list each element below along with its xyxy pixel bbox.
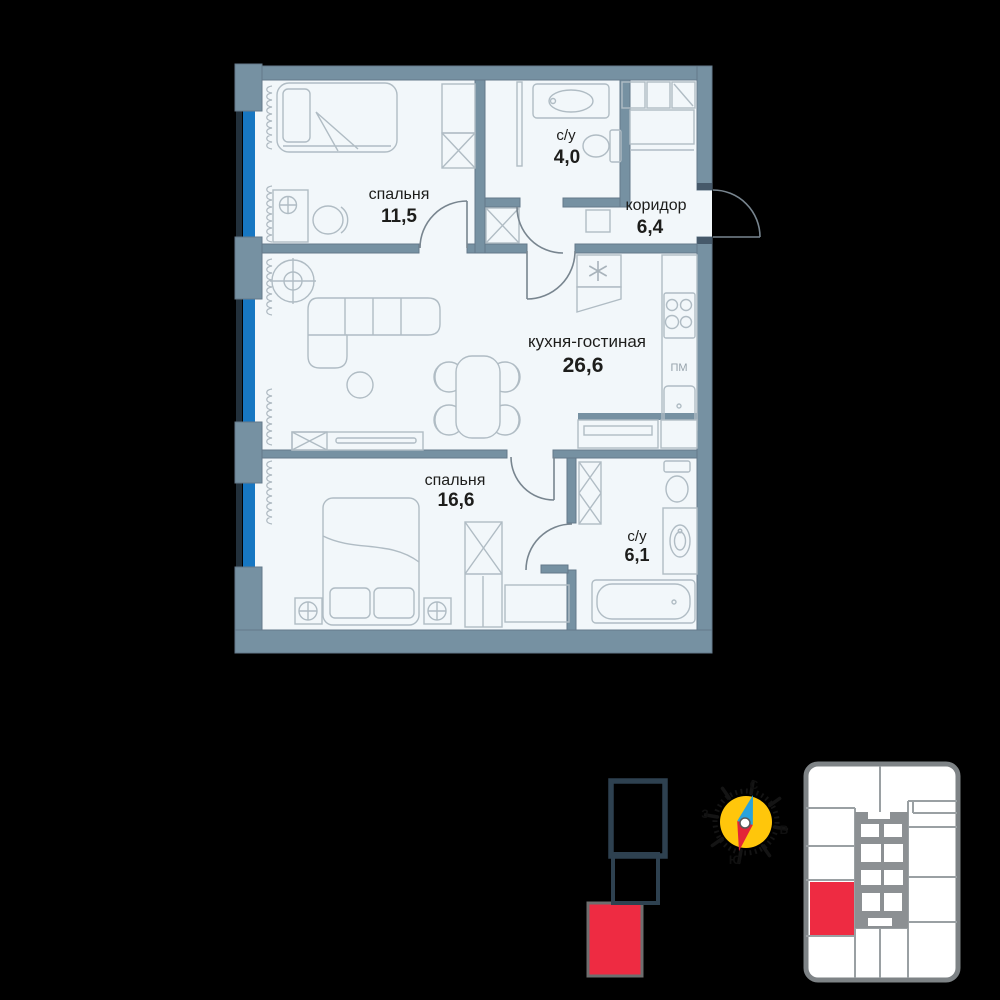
room-area-corridor: 6,4 [637,217,664,238]
compass: С В Ю З [701,778,788,867]
building-footprint [588,781,665,976]
room-label-bedroom1: спальня [369,186,430,203]
compass-west-label: З [701,807,709,821]
compass-east-label: В [780,823,789,837]
floor-plan: спальня 11,5 с/у 4,0 коридор 6,4 кухня-г… [235,64,760,653]
compass-north-label: С [750,778,759,792]
room-area-bedroom1: 11,5 [381,206,417,227]
window-frame [236,299,242,422]
window-glass [243,299,255,422]
compass-pivot [740,818,750,828]
tv-console [292,432,423,450]
room-label-kitchen-living: кухня-гостиная [528,332,646,351]
dishwasher-label: ПМ [670,362,687,374]
shower-partition [517,82,522,166]
dining-table [456,356,500,438]
room-label-bathroom2: с/у [627,528,647,545]
floor-plate-mini-map [806,764,958,980]
footprint-selected-section [588,903,642,976]
window-frame [236,483,242,567]
floor-plate-core [855,812,908,928]
footprint-upper-block [611,781,665,856]
room-label-corridor: коридор [625,197,686,214]
bed [323,498,419,625]
room-area-bedroom2: 16,6 [438,490,475,511]
sideboard [661,420,697,448]
footprint-lower-block [613,854,658,903]
compass-south-label: Ю [729,853,741,867]
entrance-door [713,190,760,237]
entrance-threshold [697,190,712,237]
screenshot-canvas: спальня 11,5 с/у 4,0 коридор 6,4 кухня-г… [0,0,1000,1000]
window-glass [243,483,255,567]
selected-apartment-highlight [810,882,855,936]
facade-windows [235,64,262,653]
room-area-bathroom2: 6,1 [624,545,649,565]
room-label-bedroom2: спальня [425,472,486,489]
wall-pier [235,422,262,483]
window-frame [236,111,242,237]
room-area-bathroom1: 4,0 [554,147,580,168]
ceiling-light-icon [279,196,297,214]
window-glass [243,111,255,237]
room-area-kitchen-living: 26,6 [563,354,604,377]
wall-pier [235,64,262,111]
room-label-bathroom1: с/у [556,127,576,144]
apartment-plan-image: спальня 11,5 с/у 4,0 коридор 6,4 кухня-г… [0,0,1000,1000]
sideboard [578,420,658,448]
wall-pier [235,237,262,299]
